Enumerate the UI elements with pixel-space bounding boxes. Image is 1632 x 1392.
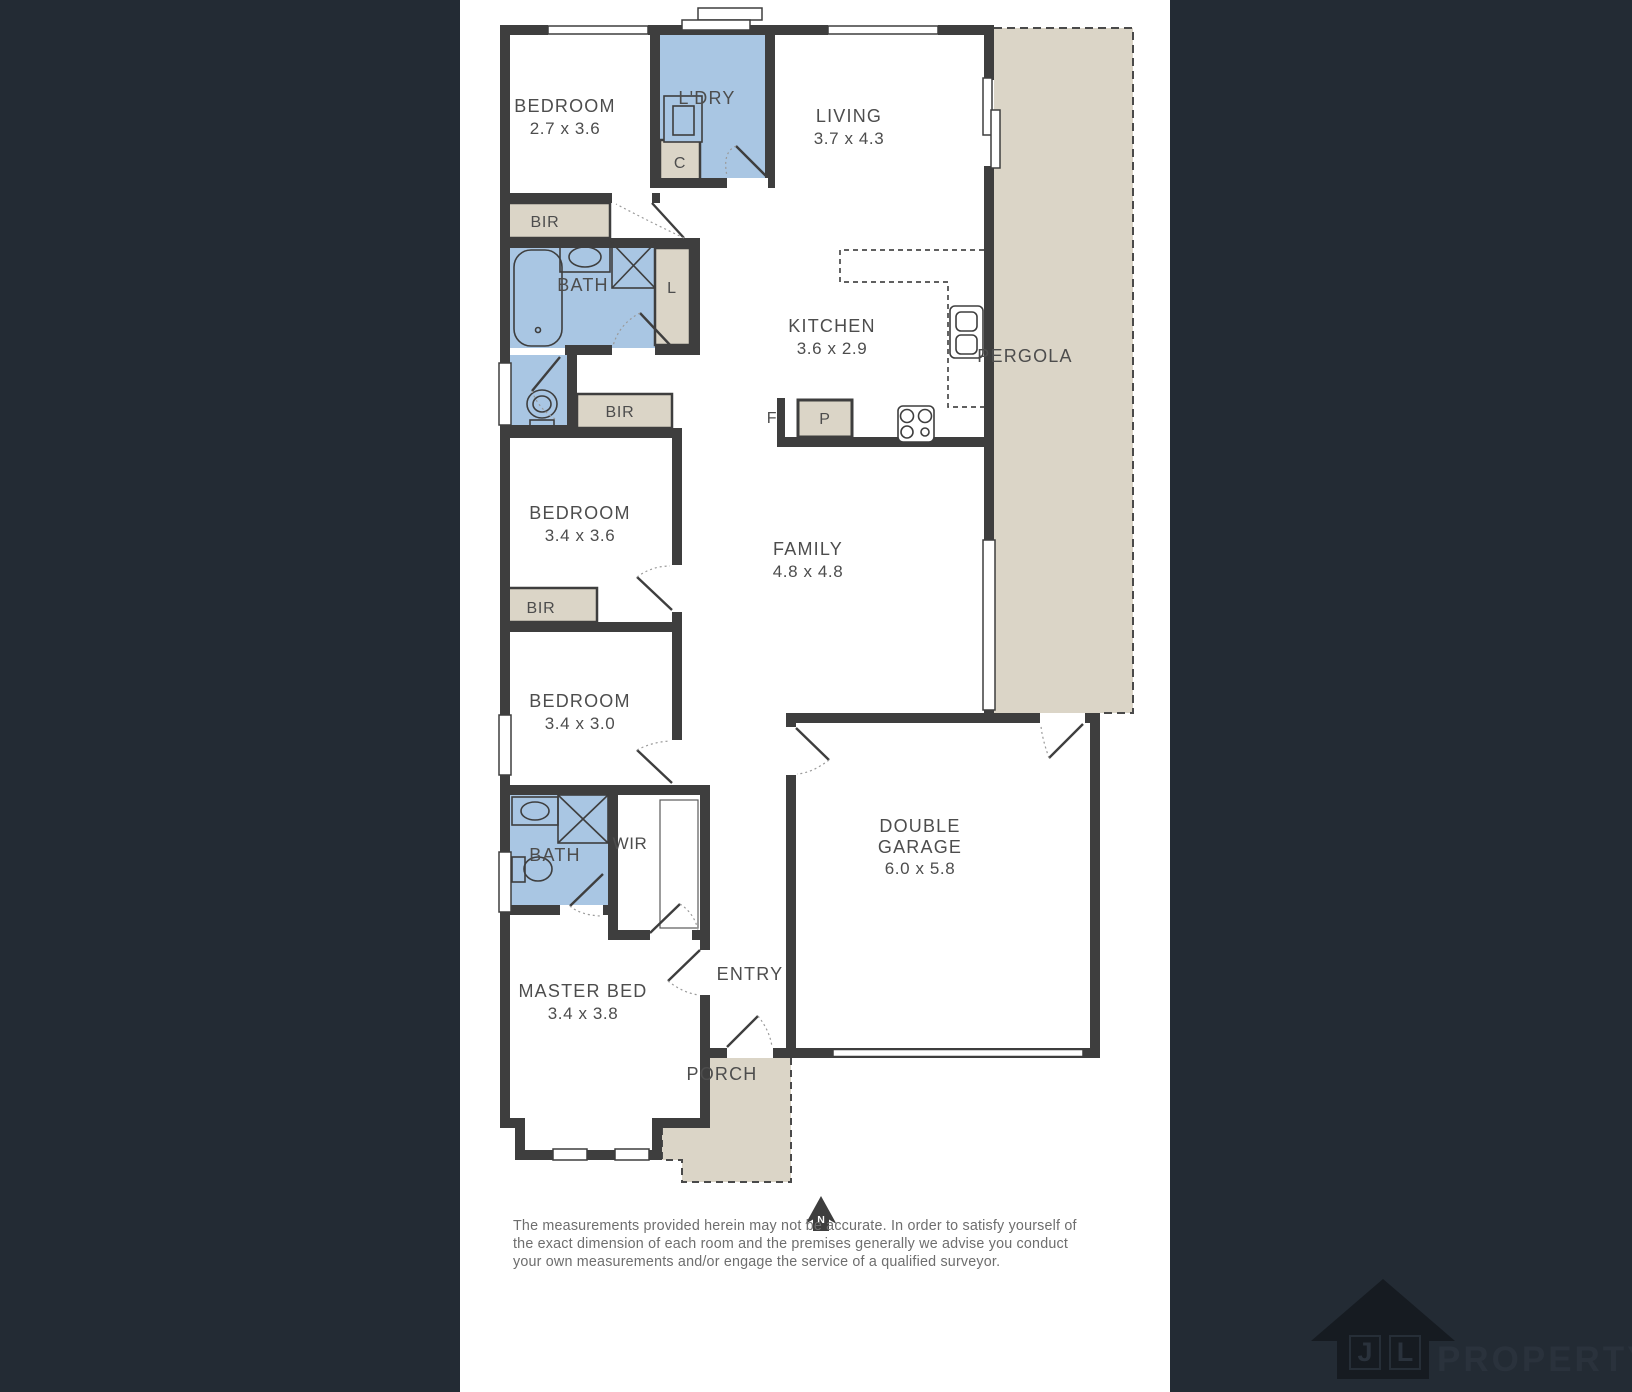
appliance-label-fridge: F (767, 410, 778, 427)
room-label-entry: ENTRY (717, 964, 784, 984)
window (499, 715, 511, 775)
window (828, 26, 938, 34)
bath1-floor (510, 248, 655, 348)
sliding-door-panel (991, 110, 1000, 168)
floorplan-canvas: BEDROOM 2.7 x 3.6 L'DRY LIVING 3.7 x 4.3… (0, 0, 1632, 1392)
room-label-bath1: BATH (557, 275, 608, 295)
room-dims-bedroom1: 2.7 x 3.6 (530, 119, 601, 138)
disclaimer-line1: The measurements provided herein may not… (513, 1218, 1077, 1234)
stove-icon (898, 406, 934, 442)
room-label-wir: WIR (613, 834, 648, 853)
room-label-living: LIVING (816, 106, 882, 126)
room-label-bedroom3: BEDROOM (529, 691, 630, 711)
disclaimer-text: The measurements provided herein may not… (513, 1218, 1077, 1270)
room-dims-kitchen: 3.6 x 2.9 (797, 339, 868, 358)
window (553, 1149, 587, 1160)
meter-box-icon (698, 8, 762, 20)
logo-wordmark: PROPERTY (1437, 1340, 1632, 1379)
window (499, 363, 511, 425)
room-dims-garage: 6.0 x 5.8 (885, 859, 956, 878)
floorplan-page: BEDROOM 2.7 x 3.6 L'DRY LIVING 3.7 x 4.3… (0, 0, 1632, 1392)
closet-label-cupboard: C (674, 155, 686, 172)
pergola-area (994, 28, 1133, 713)
room-label-garage-line1: DOUBLE (879, 816, 960, 836)
room-dims-master: 3.4 x 3.8 (548, 1004, 619, 1023)
room-dims-bedroom3: 3.4 x 3.0 (545, 714, 616, 733)
window (615, 1149, 649, 1160)
window (499, 852, 511, 912)
disclaimer-line3: your own measurements and/or engage the … (513, 1254, 1000, 1270)
logo-letter-j: J (1357, 1337, 1372, 1367)
room-label-bedroom1: BEDROOM (514, 96, 615, 116)
room-label-master: MASTER BED (518, 981, 647, 1001)
room-label-family: FAMILY (773, 539, 843, 559)
garage-door (833, 1050, 1083, 1057)
room-dims-bedroom2: 3.4 x 3.6 (545, 526, 616, 545)
closet-label-bir3: BIR (526, 600, 555, 617)
room-label-laundry: L'DRY (678, 88, 735, 108)
room-label-bath2: BATH (529, 845, 580, 865)
room-label-porch: PORCH (686, 1064, 757, 1084)
room-label-kitchen: KITCHEN (788, 316, 875, 336)
room-label-pergola: PERGOLA (977, 346, 1072, 366)
window (548, 26, 648, 34)
closet-label-linen: L (667, 280, 677, 297)
room-label-garage-line2: GARAGE (878, 837, 962, 857)
disclaimer-line2: the exact dimension of each room and the… (513, 1236, 1068, 1252)
room-dims-living: 3.7 x 4.3 (814, 129, 885, 148)
closet-label-pantry: P (819, 411, 830, 428)
logo-letter-l: L (1397, 1337, 1414, 1367)
room-label-bedroom2: BEDROOM (529, 503, 630, 523)
closet-label-bir1: BIR (530, 214, 559, 231)
meter-box-icon (682, 20, 750, 30)
room-dims-family: 4.8 x 4.8 (773, 562, 844, 581)
window (983, 540, 995, 710)
closet-label-bir2: BIR (605, 404, 634, 421)
